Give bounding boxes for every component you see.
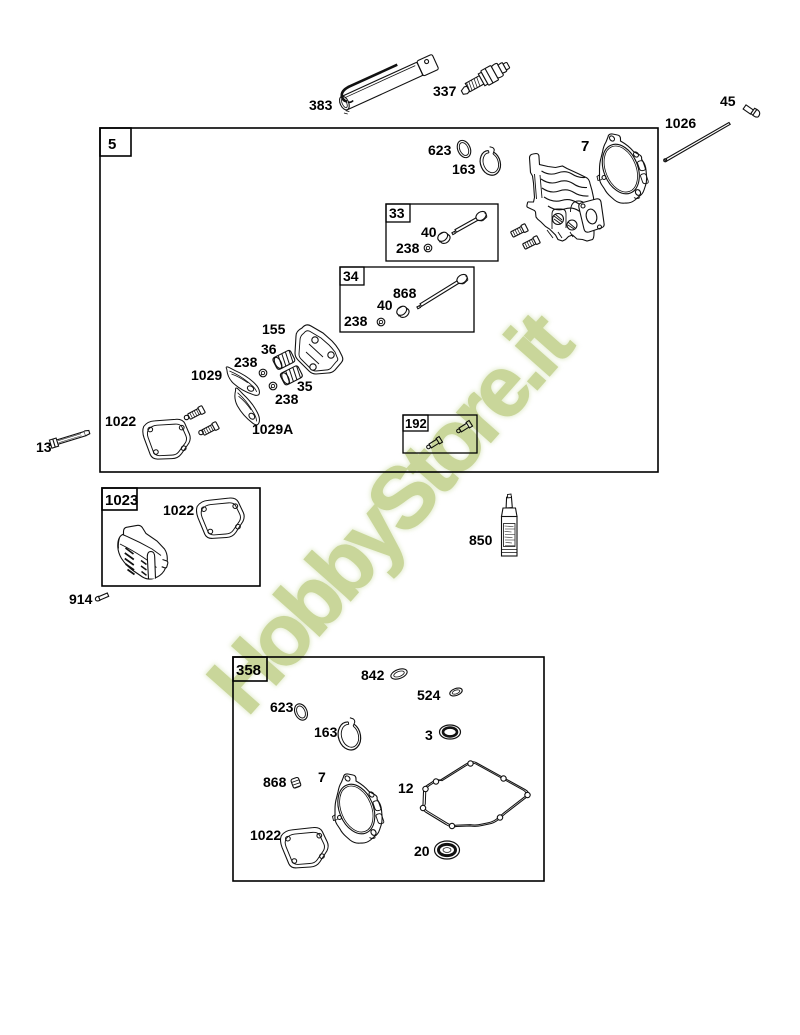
svg-text:7: 7	[318, 769, 326, 785]
svg-text:3: 3	[425, 727, 433, 743]
svg-text:20: 20	[414, 843, 430, 859]
svg-text:850: 850	[469, 532, 493, 548]
svg-text:1022: 1022	[250, 827, 281, 843]
svg-text:383: 383	[309, 97, 333, 113]
svg-text:155: 155	[262, 321, 286, 337]
svg-text:33: 33	[389, 205, 405, 221]
svg-text:868: 868	[263, 774, 287, 790]
svg-text:12: 12	[398, 780, 414, 796]
svg-text:5: 5	[108, 136, 116, 153]
svg-text:34: 34	[343, 268, 359, 284]
svg-text:1026: 1026	[665, 115, 696, 131]
svg-text:842: 842	[361, 667, 385, 683]
svg-text:1022: 1022	[163, 502, 194, 518]
svg-text:868: 868	[393, 285, 417, 301]
svg-text:1023: 1023	[105, 492, 138, 509]
svg-text:163: 163	[452, 161, 476, 177]
svg-text:35: 35	[297, 378, 313, 394]
svg-text:7: 7	[581, 138, 589, 155]
svg-text:40: 40	[377, 297, 393, 313]
svg-text:238: 238	[396, 240, 420, 256]
svg-text:238: 238	[275, 391, 299, 407]
svg-text:40: 40	[421, 224, 437, 240]
svg-text:238: 238	[234, 354, 258, 370]
svg-text:524: 524	[417, 687, 441, 703]
svg-text:1029: 1029	[191, 367, 222, 383]
svg-text:13: 13	[36, 439, 52, 455]
svg-text:45: 45	[720, 93, 736, 109]
svg-text:36: 36	[261, 341, 277, 357]
svg-text:337: 337	[433, 83, 457, 99]
svg-text:623: 623	[428, 142, 452, 158]
svg-text:163: 163	[314, 724, 338, 740]
svg-text:1022: 1022	[105, 413, 136, 429]
svg-text:1029A: 1029A	[252, 421, 293, 437]
svg-text:914: 914	[69, 591, 93, 607]
svg-text:238: 238	[344, 313, 368, 329]
